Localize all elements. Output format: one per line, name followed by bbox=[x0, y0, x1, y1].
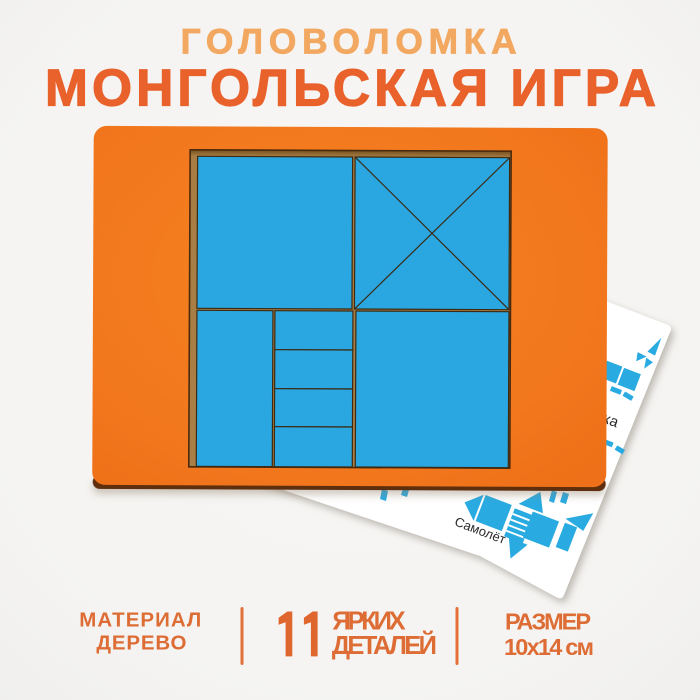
svg-text:ДЕТАЛЕЙ: ДЕТАЛЕЙ bbox=[332, 630, 437, 660]
svg-text:10х14 см: 10х14 см bbox=[504, 634, 594, 660]
svg-text:МАТЕРИАЛ: МАТЕРИАЛ bbox=[79, 609, 201, 632]
svg-text:РАЗМЕР: РАЗМЕР bbox=[505, 608, 591, 634]
svg-text:ГОЛОВОЛОМКА: ГОЛОВОЛОМКА bbox=[181, 22, 517, 61]
svg-text:ДЕРЕВО: ДЕРЕВО bbox=[96, 631, 186, 654]
svg-text:МОНГОЛЬСКАЯ ИГРА: МОНГОЛЬСКАЯ ИГРА bbox=[45, 59, 656, 117]
